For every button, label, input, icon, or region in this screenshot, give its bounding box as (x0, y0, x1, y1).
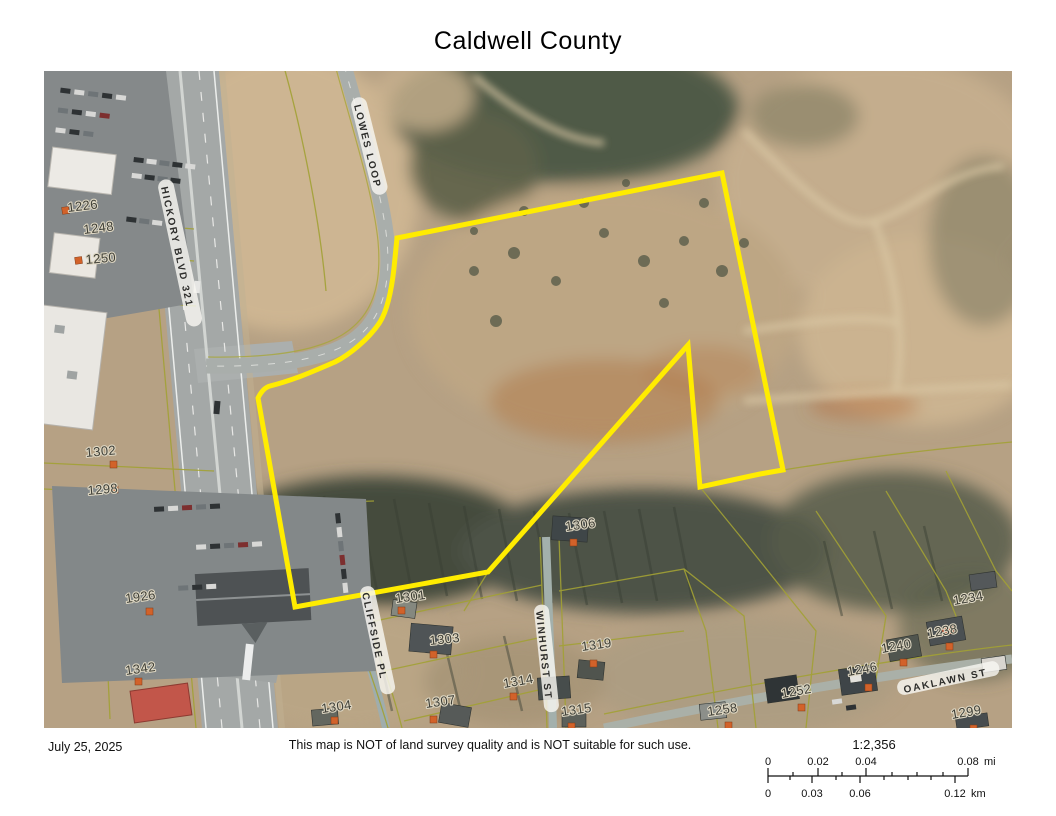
scale-bar-ticks (768, 768, 968, 783)
parcel-number: 1303 (429, 630, 461, 648)
scale-km-006: 0.06 (849, 788, 870, 800)
scale-mi-002: 0.02 (807, 756, 828, 768)
scale-km-012: 0.12 (944, 788, 965, 800)
scale-ratio: 1:2,356 (852, 737, 895, 752)
scale-km-unit: km (971, 788, 986, 800)
disclaimer-text: This map is NOT of land survey quality a… (220, 738, 760, 752)
page-title: Caldwell County (0, 27, 1056, 56)
parcel-number: 1302 (85, 442, 117, 460)
map-date: July 25, 2025 (48, 740, 122, 754)
scale-mi-unit: mi (984, 756, 996, 768)
map-export-page: Caldwell County (0, 0, 1056, 816)
parcel-number: 1250 (85, 249, 117, 267)
aerial-imagery: HICKORY BLVD 321 LOWES LOOP CLIFFSIDE PL… (44, 71, 1012, 728)
scale-mi-0: 0 (765, 756, 771, 768)
scale-mi-004: 0.04 (855, 756, 876, 768)
scale-km-0: 0 (765, 788, 771, 800)
scale-bar: 1:2,356 0 0.02 0.04 0.08 mi 0 0.03 0.06 … (760, 735, 1016, 807)
scale-mi-008: 0.08 (957, 756, 978, 768)
map-canvas: HICKORY BLVD 321 LOWES LOOP CLIFFSIDE PL… (44, 71, 1012, 728)
parcel-number: 1298 (87, 480, 119, 498)
scale-km-003: 0.03 (801, 788, 822, 800)
